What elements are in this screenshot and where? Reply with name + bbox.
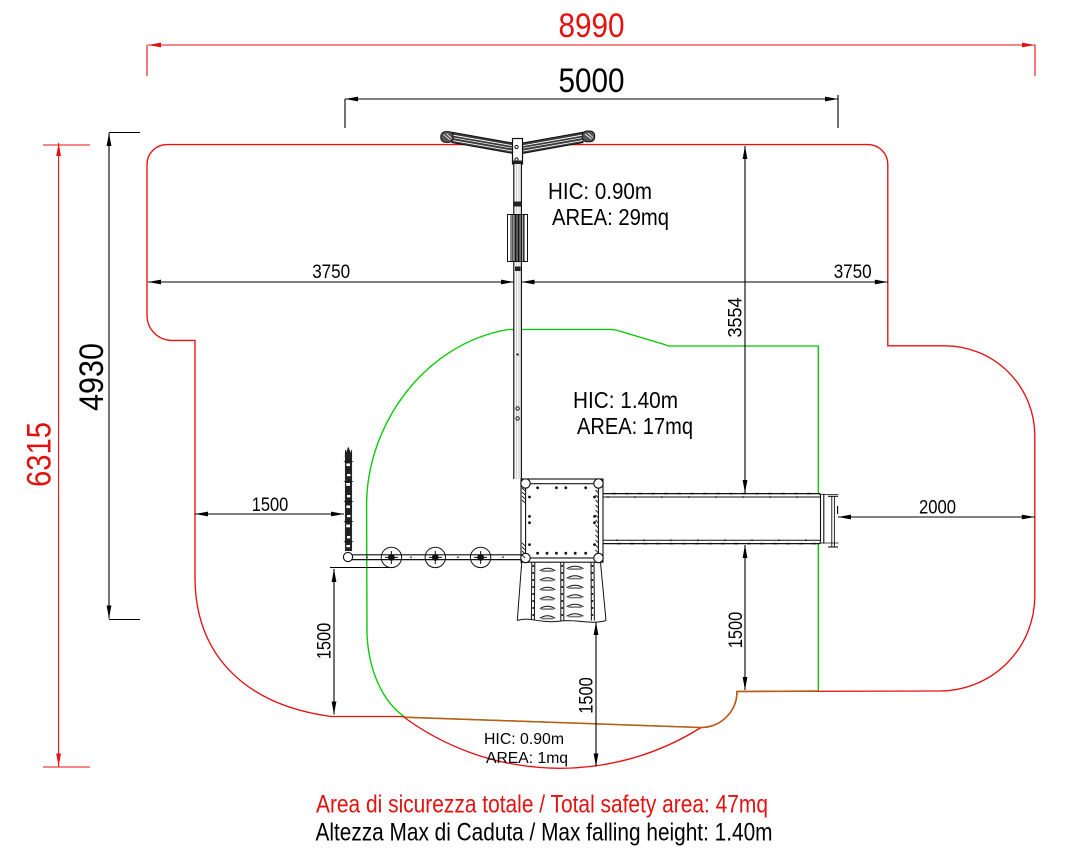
svg-text:AREA: 1mq: AREA: 1mq (486, 750, 568, 767)
svg-text:HIC: 1.40m: HIC: 1.40m (573, 387, 678, 413)
svg-text:Altezza Max di Caduta / Max fa: Altezza Max di Caduta / Max falling heig… (316, 819, 773, 847)
svg-text:AREA: 29mq: AREA: 29mq (552, 204, 669, 230)
svg-text:4930: 4930 (73, 343, 111, 411)
svg-text:3554: 3554 (725, 297, 747, 337)
svg-text:5000: 5000 (559, 62, 625, 100)
svg-text:HIC: 0.90m: HIC: 0.90m (484, 731, 564, 748)
svg-text:6315: 6315 (20, 422, 58, 487)
svg-text:HIC: 0.90m: HIC: 0.90m (548, 178, 652, 204)
svg-text:3750: 3750 (312, 261, 350, 283)
svg-text:3750: 3750 (834, 261, 872, 283)
svg-text:1500: 1500 (252, 494, 289, 516)
svg-text:8990: 8990 (559, 7, 625, 45)
svg-text:1500: 1500 (314, 623, 336, 660)
svg-text:Area di sicurezza totale / Tot: Area di sicurezza totale / Total safety … (316, 791, 768, 819)
svg-text:AREA: 17mq: AREA: 17mq (577, 413, 693, 439)
svg-text:2000: 2000 (919, 497, 956, 519)
svg-text:1500: 1500 (725, 612, 747, 649)
svg-text:1500: 1500 (576, 677, 598, 714)
